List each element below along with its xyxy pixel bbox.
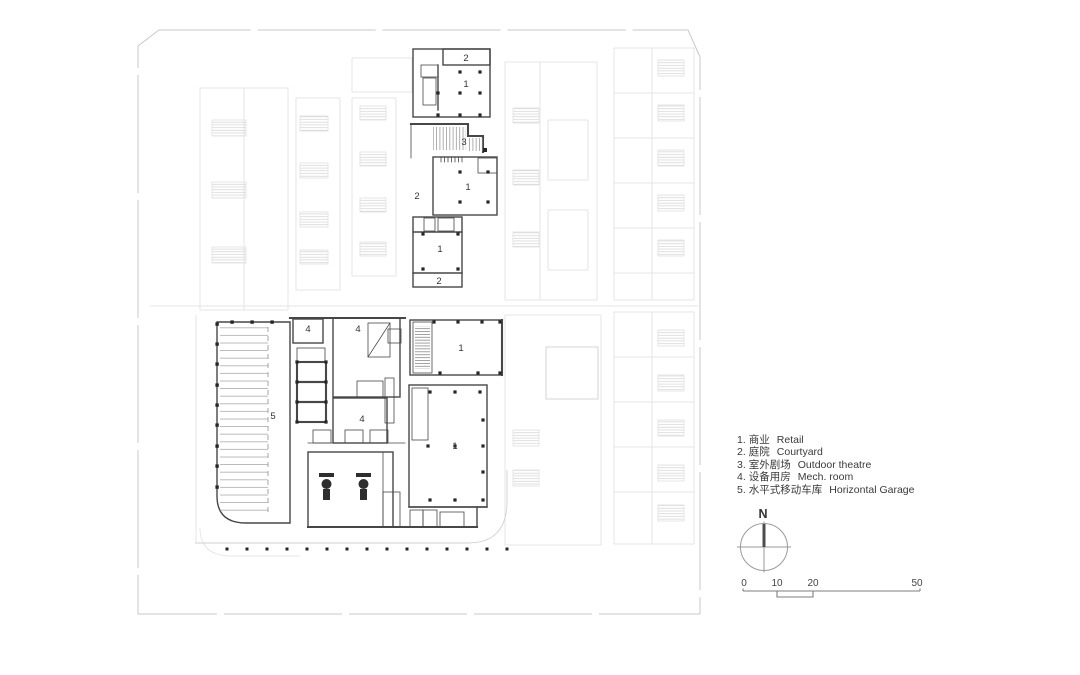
legend-item-english: Courtyard (777, 446, 823, 458)
legend-item-number: 5. (737, 484, 746, 496)
north-label: N (758, 507, 767, 521)
perimeter-columns (226, 548, 509, 551)
north-compass: N (737, 507, 791, 573)
room-label-retail-mid-south: 1 (437, 244, 442, 255)
legend-item-english: Retail (777, 434, 804, 446)
garage-area (217, 322, 290, 523)
room-label-courtyard-mid: 2 (414, 191, 419, 202)
room-label-courtyard-north: 2 (463, 53, 468, 64)
site-plan-drawing: 2 1 3 2 1 1 2 4 4 1 5 4 1 N 0 10 20 50 (0, 0, 1080, 675)
mechanical-unit-icon (356, 473, 371, 500)
room-label-garage: 5 (270, 411, 275, 422)
legend-item-english: Outdoor theatre (798, 459, 872, 471)
legend-item-number: 1. (737, 434, 746, 446)
legend-item-chinese: 庭院 (749, 446, 770, 458)
room-label-retail-east: 1 (458, 343, 463, 354)
scale-tick-20: 20 (807, 578, 819, 589)
legend: 1.商业Retail 2.庭院Courtyard 3.室外剧场Outdoor t… (737, 434, 914, 496)
legend-item-number: 2. (737, 446, 746, 458)
legend-item-number: 3. (737, 459, 746, 471)
mechanical-unit-icon (319, 473, 334, 500)
theatre-seating-hatch (468, 138, 483, 151)
legend-item-number: 4. (737, 471, 746, 483)
scale-tick-10: 10 (771, 578, 783, 589)
room-label-retail-southeast: 1 (452, 441, 457, 452)
legend-item-horizontal-garage: 5.水平式移动车库Horizontal Garage (737, 484, 914, 496)
legend-item-chinese: 室外剧场 (749, 459, 791, 471)
legend-item-retail: 1.商业Retail (737, 434, 914, 446)
legend-item-chinese: 设备用房 (749, 471, 791, 483)
room-label-retail-mid: 1 (465, 182, 470, 193)
legend-item-chinese: 水平式移动车库 (749, 484, 823, 496)
legend-item-english: Mech. room (798, 471, 853, 483)
parking-hatch (220, 327, 268, 515)
room-label-mech-a: 4 (305, 324, 310, 335)
upper-building-cluster (411, 49, 497, 287)
legend-item-english: Horizontal Garage (829, 484, 914, 496)
legend-item-outdoor-theatre: 3.室外剧场Outdoor theatre (737, 459, 914, 471)
legend-item-mech-room: 4.设备用房Mech. room (737, 471, 914, 483)
stair-tread-hatch (415, 326, 430, 369)
room-label-mech-b: 4 (355, 324, 360, 335)
scale-tick-50: 50 (911, 578, 923, 589)
structural-columns (421, 70, 489, 270)
room-label-outdoor-theatre: 3 (461, 137, 466, 148)
scale-bar: 0 10 20 50 (741, 578, 923, 597)
room-label-mech-c: 4 (359, 414, 364, 425)
scale-tick-0: 0 (741, 578, 747, 589)
floor-plan-page: 2 1 3 2 1 1 2 4 4 1 5 4 1 N 0 10 20 50 1… (0, 0, 1080, 675)
equipment-room (308, 452, 400, 527)
legend-item-chinese: 商业 (749, 434, 770, 446)
legend-item-courtyard: 2.庭院Courtyard (737, 446, 914, 458)
room-label-retail-north: 1 (463, 79, 468, 90)
room-label-courtyard-south: 2 (436, 276, 441, 287)
